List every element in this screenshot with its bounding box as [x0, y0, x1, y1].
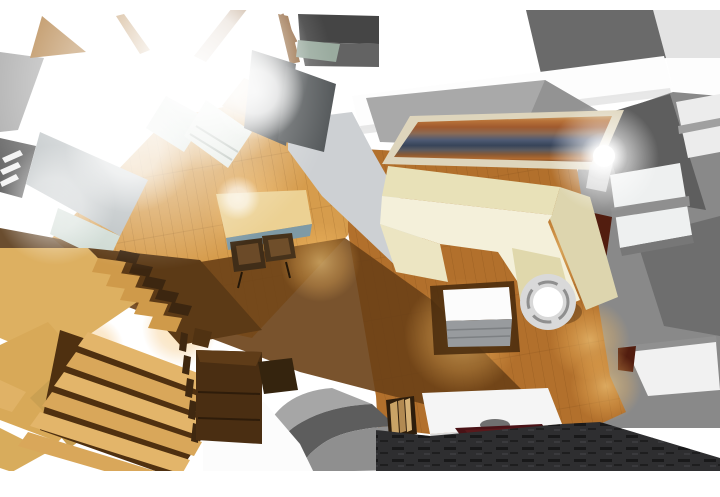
bottom-margin — [0, 471, 720, 497]
side-table-dark — [258, 358, 298, 394]
round-chair-cushion — [533, 287, 563, 317]
coffee-table-front — [446, 319, 512, 347]
left-wall-glare — [0, 145, 115, 265]
kitchen-glare-stove — [208, 44, 304, 140]
scene-svg — [0, 0, 720, 497]
dining-chair-seat — [268, 238, 291, 257]
floor-lamp-core — [593, 145, 615, 167]
dining-spot-glare — [216, 176, 260, 220]
coffee-table-top — [443, 287, 512, 321]
interior-3d-render — [0, 0, 720, 497]
top-margin — [0, 0, 720, 10]
